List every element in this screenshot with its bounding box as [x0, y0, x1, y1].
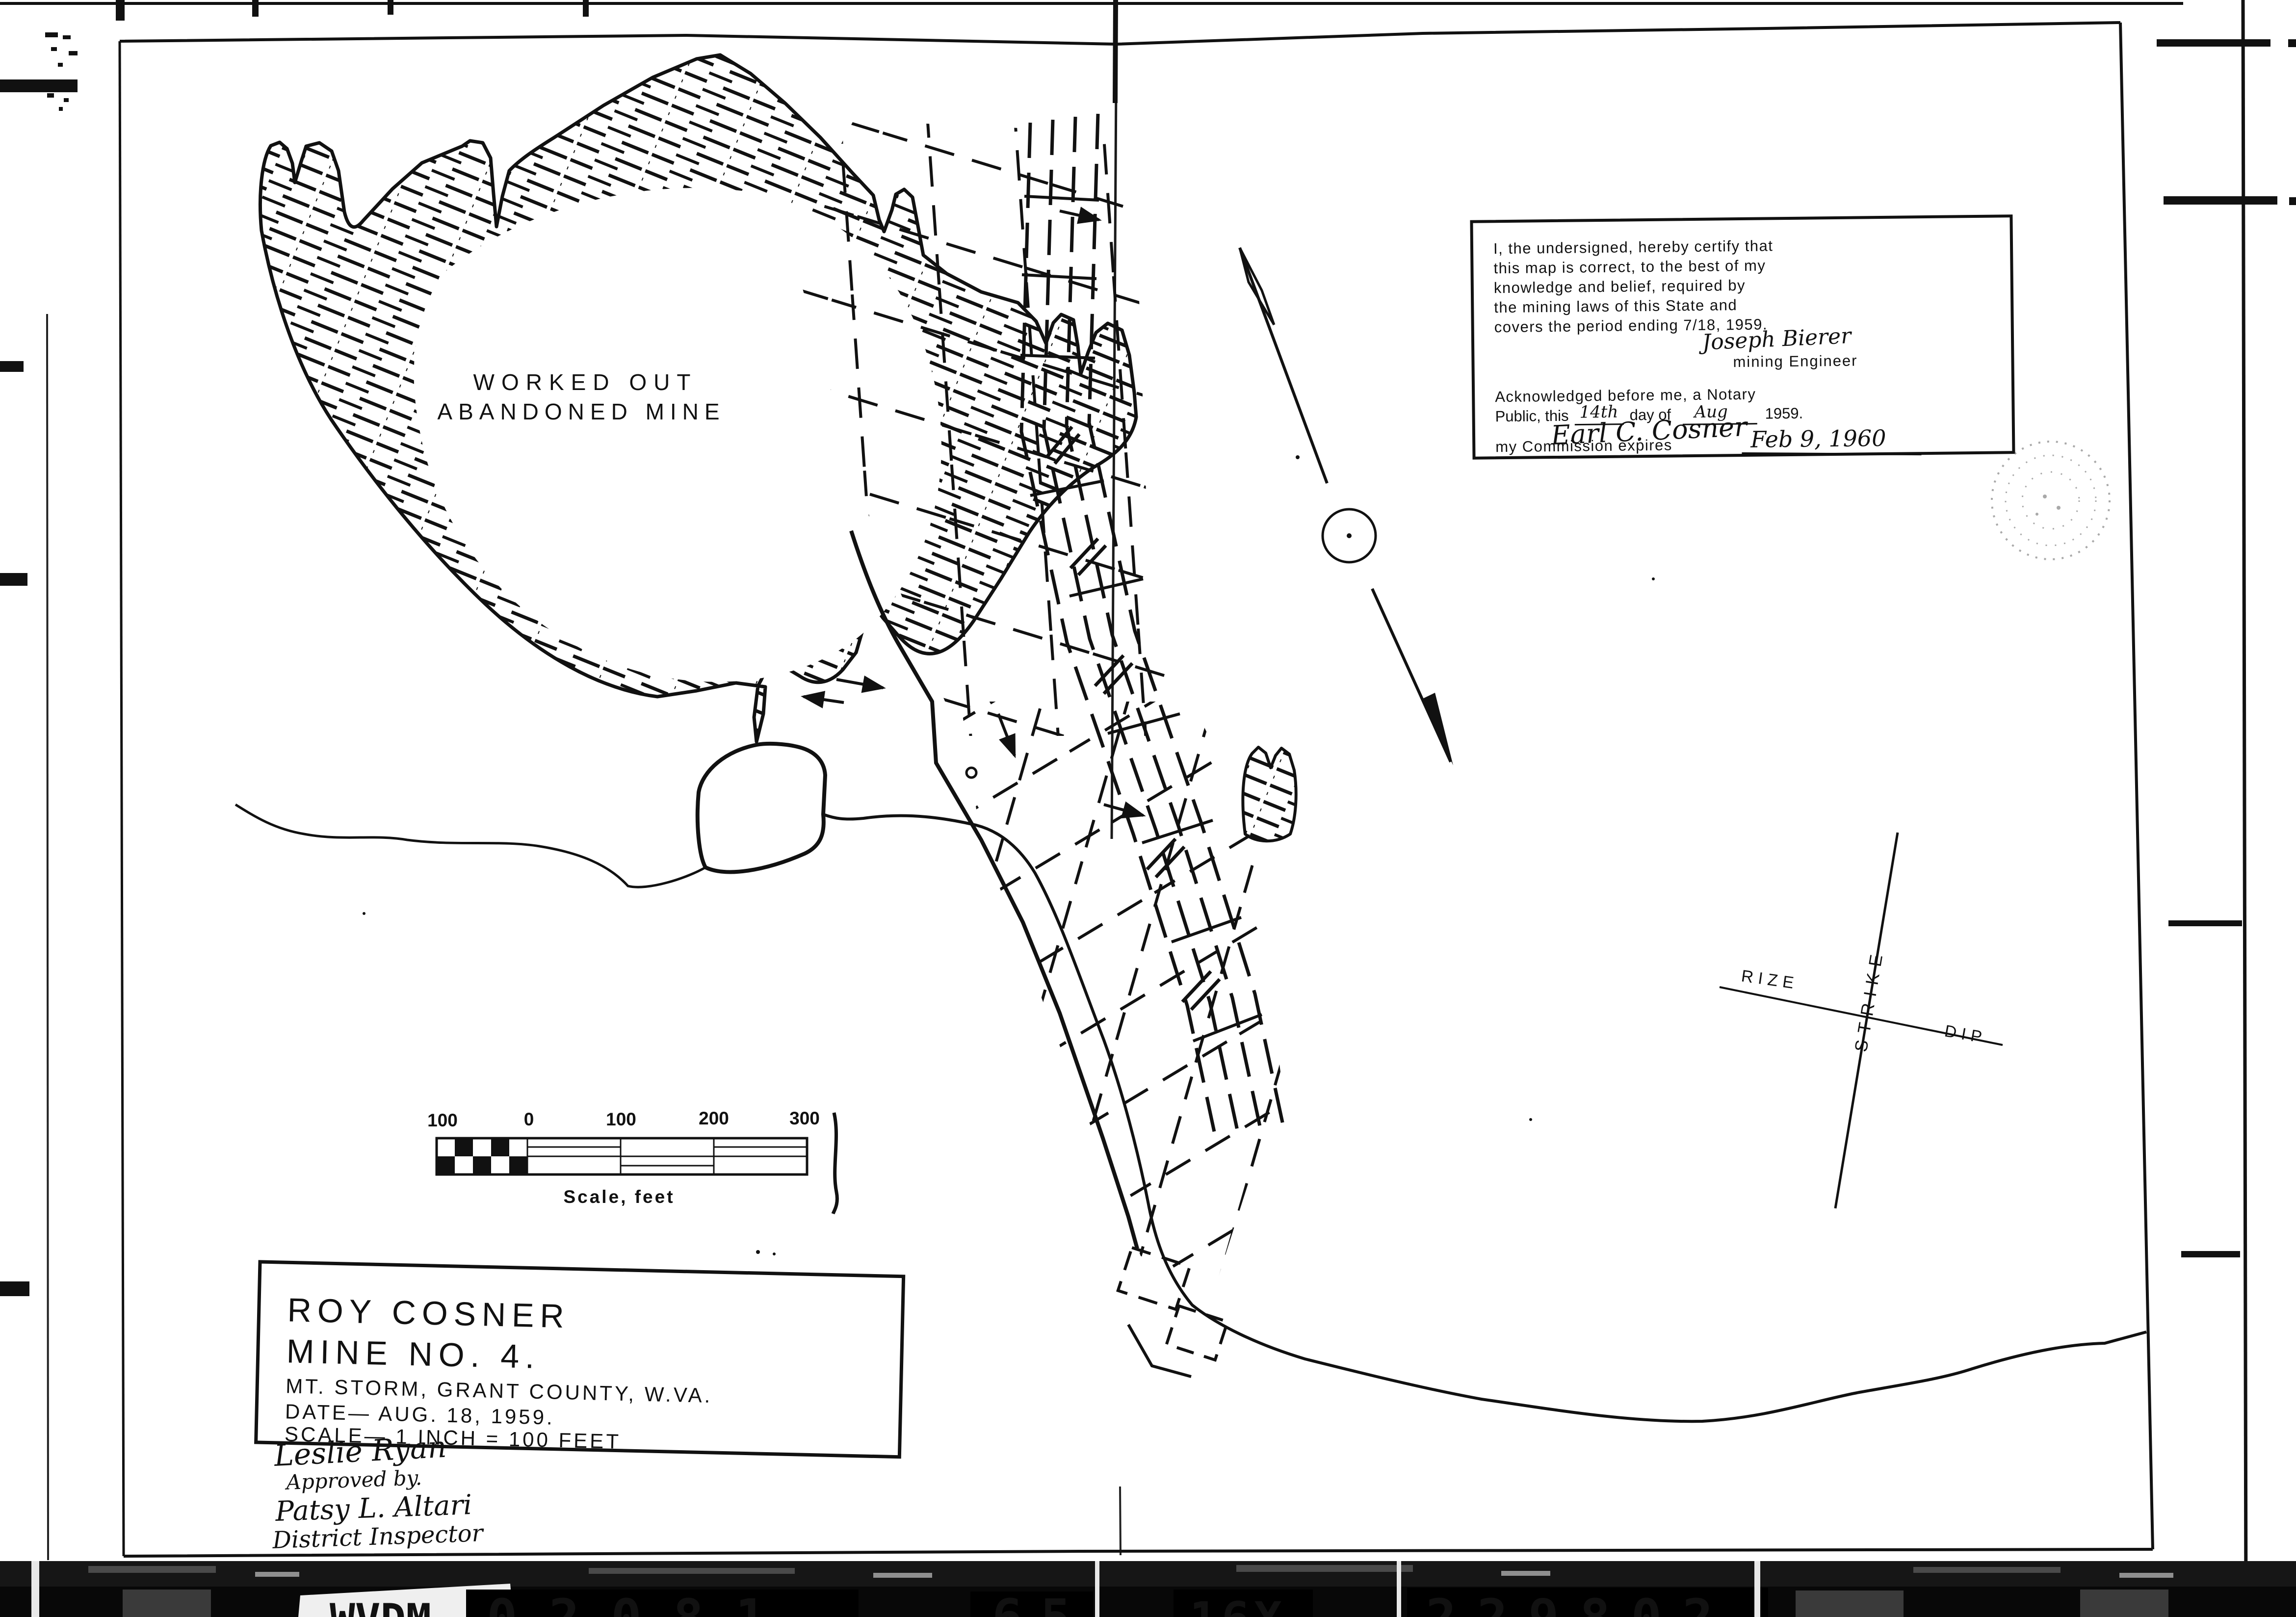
scale-tick-label: 0	[524, 1109, 534, 1129]
left-registration-mark	[0, 573, 27, 586]
film-grain-band	[0, 1561, 2296, 1588]
right-registration-mark	[2164, 196, 2277, 205]
title-line1: ROY COSNER	[287, 1291, 571, 1335]
commission-prefix: my Commission expires	[1495, 436, 1672, 455]
strike-label: STRIKE	[1851, 946, 1887, 1053]
outlier-worked-patch	[1243, 747, 1296, 841]
stray-ink-mark	[833, 1113, 837, 1214]
scale-tick-label: 100	[427, 1110, 458, 1130]
cert-line: knowledge and belief, required by	[1494, 277, 1746, 296]
scale-tick-label: 300	[789, 1108, 820, 1128]
pond	[698, 744, 825, 872]
right-registration-mark	[2168, 920, 2242, 926]
north-arrow-head	[1422, 693, 1453, 765]
scale-tick-label: 200	[699, 1108, 729, 1128]
commission-date: Feb 9, 1960	[1750, 425, 1886, 453]
film-strip: WVDM 02081 65 16X 229802	[0, 1561, 2296, 1617]
cert-line: this map is correct, to the best of my	[1493, 257, 1766, 277]
north-arrow-nib	[1240, 248, 1274, 325]
scale-tick-label: 100	[606, 1109, 636, 1129]
title-block: ROY COSNER MINE NO. 4. MT. STORM, GRANT …	[256, 1262, 904, 1460]
left-paper-edge	[47, 314, 48, 1560]
fold-seam-top	[1115, 0, 1116, 103]
strike-dip-indicator: STRIKE RIZE DIP	[1720, 833, 2003, 1208]
cert-line: I, the undersigned, hereby certify that	[1493, 237, 1774, 257]
worked-out-label-line1: WORKED OUT	[473, 369, 698, 395]
fold-seam-bottom	[1120, 1487, 1121, 1555]
right-registration-mark	[2181, 1251, 2240, 1257]
scale-bar: 100 0 100 200 300 Scale, feet	[427, 1108, 837, 1214]
scale-caption: Scale, feet	[563, 1187, 675, 1207]
top-tick	[252, 0, 259, 17]
right-edge-dot	[2288, 39, 2296, 47]
mine-workings	[799, 114, 1284, 1377]
film-id1: 02081	[487, 1588, 797, 1617]
top-tick	[116, 0, 125, 21]
north-arrow	[1240, 248, 1453, 765]
border-top	[120, 23, 2120, 44]
film-id3: 16X	[1189, 1592, 1286, 1617]
notary-year: 1959.	[1765, 405, 1803, 422]
left-registration-mark	[0, 361, 24, 372]
right-registration-mark	[2157, 39, 2270, 47]
film-agency-label: WVDM	[330, 1595, 431, 1617]
right-film-edge	[2243, 0, 2246, 1617]
dip-label: DIP	[1943, 1021, 1988, 1047]
worked-out-label-line2: ABANDONED MINE	[437, 399, 725, 424]
left-registration-mark	[0, 79, 78, 92]
cert-line: the mining laws of this State and	[1494, 296, 1737, 316]
border-bottom	[124, 1549, 2153, 1556]
border-right	[2120, 23, 2153, 1549]
rize-label: RIZE	[1740, 966, 1800, 993]
film-id4: 229802	[1426, 1588, 1734, 1617]
certification-box: I, the undersigned, hereby certify that …	[1471, 216, 2013, 459]
top-tick	[388, 0, 393, 15]
top-tick	[583, 0, 589, 17]
left-registration-mark	[0, 1281, 29, 1296]
right-edge-dot	[2289, 197, 2296, 205]
film-id2: 65	[992, 1588, 1089, 1617]
west-stream	[235, 805, 705, 887]
notary-seal	[1992, 442, 2110, 559]
mine-map-scan: WORKED OUT ABANDONED MINE	[0, 0, 2296, 1617]
approved-by-label: Approved by.	[284, 1465, 422, 1494]
engineer-title: mining Engineer	[1733, 352, 1857, 371]
speckle-cluster	[45, 32, 78, 111]
border-left	[120, 41, 124, 1556]
title-line2: MINE NO. 4.	[286, 1332, 541, 1376]
